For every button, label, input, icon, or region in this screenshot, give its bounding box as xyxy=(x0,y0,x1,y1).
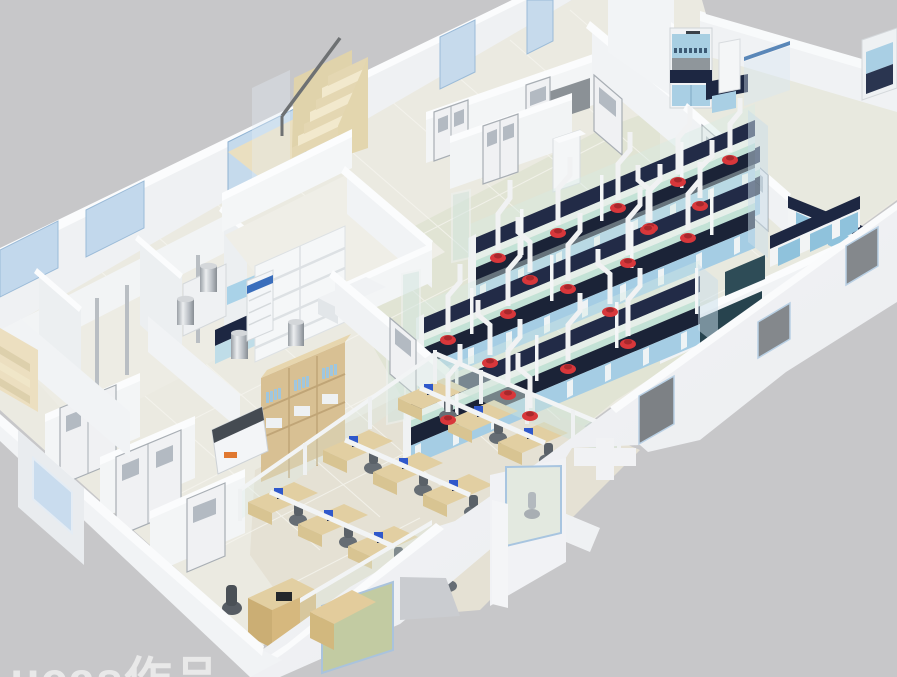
svg-text:Lucas作品: Lucas作品 xyxy=(0,654,222,677)
